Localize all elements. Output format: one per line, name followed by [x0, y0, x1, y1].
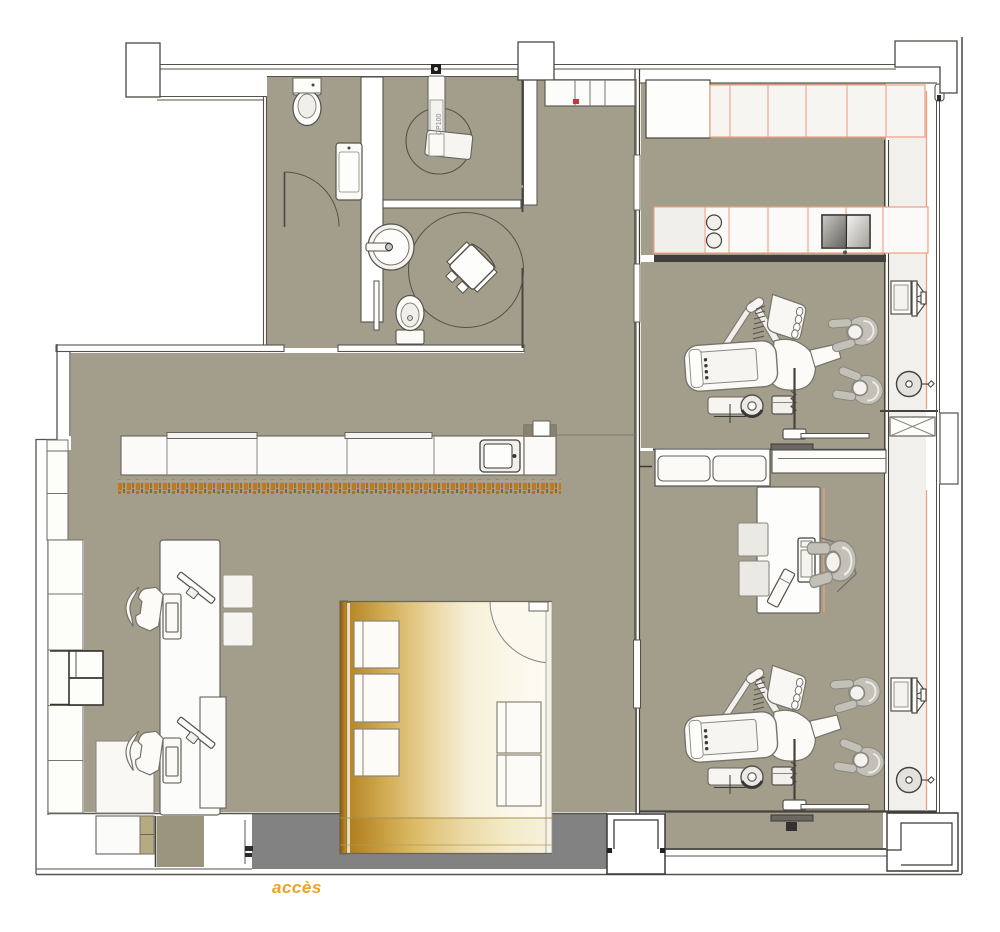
svg-text:CP100: CP100	[436, 113, 443, 135]
svg-text:accès: accès	[272, 878, 322, 897]
